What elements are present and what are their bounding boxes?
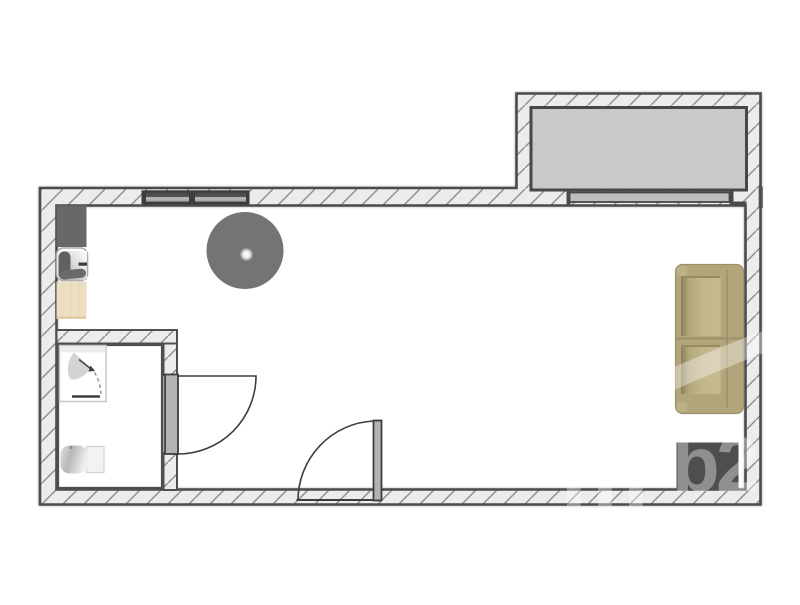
svg-text:b: b (672, 420, 720, 508)
svg-text:m: m (560, 416, 649, 528)
svg-text:2: 2 (716, 420, 759, 508)
